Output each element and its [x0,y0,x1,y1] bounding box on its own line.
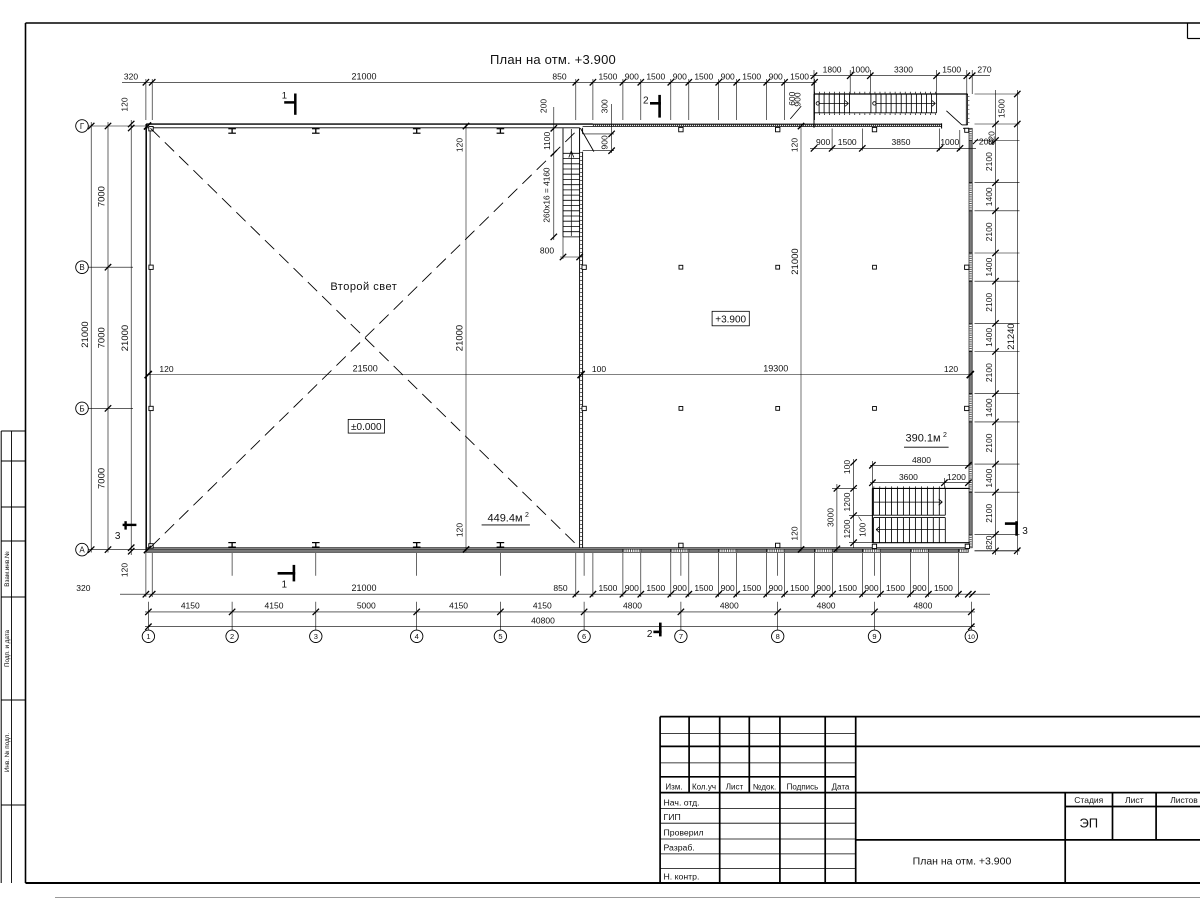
svg-text:Лист: Лист [726,783,744,792]
svg-text:5000: 5000 [357,601,376,611]
svg-text:1400: 1400 [984,328,994,347]
svg-text:2100: 2100 [984,433,994,452]
svg-text:120: 120 [944,364,958,374]
svg-text:Дата: Дата [832,783,850,792]
svg-text:900: 900 [673,71,687,81]
svg-text:120: 120 [790,526,800,540]
svg-text:1100: 1100 [542,131,552,150]
svg-text:1000: 1000 [940,137,959,147]
svg-text:Лист: Лист [1125,795,1144,805]
svg-text:Инв. № подл.: Инв. № подл. [4,733,11,772]
svg-text:390.1м: 390.1м [905,433,940,445]
svg-text:2: 2 [943,432,947,439]
svg-text:900: 900 [793,92,803,106]
svg-text:План на отм. +3.900: План на отм. +3.900 [490,52,616,67]
svg-text:Листов: Листов [1170,795,1198,805]
svg-text:1400: 1400 [984,257,994,276]
svg-text:1200: 1200 [842,519,852,538]
svg-text:1400: 1400 [984,468,994,487]
svg-text:3: 3 [314,632,318,641]
svg-text:Разраб.: Разраб. [664,842,695,852]
svg-text:Подпись: Подпись [787,783,819,792]
svg-text:9: 9 [872,632,876,641]
svg-text:900: 900 [673,583,687,593]
svg-text:21000: 21000 [455,325,466,351]
svg-text:1400: 1400 [984,398,994,417]
svg-text:200: 200 [538,99,548,113]
svg-text:3: 3 [1022,526,1028,537]
svg-text:100: 100 [842,460,852,474]
svg-text:1400: 1400 [984,187,994,206]
svg-text:В: В [79,263,84,272]
svg-text:1500: 1500 [694,583,713,593]
svg-text:±0.000: ±0.000 [351,422,382,433]
svg-text:800: 800 [540,246,554,256]
svg-text:120: 120 [790,138,800,152]
svg-text:2100: 2100 [984,293,994,312]
svg-text:4800: 4800 [912,455,931,465]
svg-text:1500: 1500 [790,71,809,81]
svg-text:120: 120 [120,97,130,111]
svg-text:270: 270 [977,65,991,75]
svg-text:1500: 1500 [598,71,617,81]
svg-text:21000: 21000 [351,583,376,593]
svg-text:1500: 1500 [886,583,905,593]
svg-text:21000: 21000 [351,71,376,81]
svg-text:1: 1 [282,91,287,102]
svg-text:1: 1 [281,580,287,591]
svg-text:100: 100 [858,522,868,536]
svg-text:4800: 4800 [913,601,932,611]
svg-text:900: 900 [864,583,878,593]
svg-text:ЭП: ЭП [1079,816,1098,831]
svg-text:5: 5 [498,632,502,641]
svg-text:850: 850 [552,71,566,81]
svg-text:7000: 7000 [97,468,108,489]
svg-text:4800: 4800 [817,601,836,611]
svg-text:21000: 21000 [80,321,91,347]
svg-text:1500: 1500 [694,71,713,81]
svg-text:900: 900 [625,71,639,81]
svg-text:19300: 19300 [763,363,788,373]
svg-text:1500: 1500 [838,583,857,593]
svg-text:Нач. отд.: Нач. отд. [664,797,700,807]
svg-text:820: 820 [986,131,996,145]
svg-text:1500: 1500 [790,583,809,593]
svg-text:1500: 1500 [742,583,761,593]
svg-text:900: 900 [769,71,783,81]
svg-text:3300: 3300 [894,65,913,75]
svg-text:900: 900 [912,583,926,593]
svg-text:3: 3 [115,531,121,542]
svg-text:8: 8 [776,632,780,641]
svg-text:1500: 1500 [942,65,961,75]
svg-text:820: 820 [984,535,994,549]
svg-text:1200: 1200 [947,472,966,482]
svg-text:№док.: №док. [753,783,776,792]
svg-text:900: 900 [721,583,735,593]
svg-text:Стадия: Стадия [1074,795,1103,805]
svg-text:900: 900 [625,583,639,593]
svg-text:Н. контр.: Н. контр. [664,872,700,882]
svg-text:3600: 3600 [899,472,918,482]
svg-text:10: 10 [968,634,976,641]
svg-text:4150: 4150 [449,601,468,611]
svg-text:900: 900 [817,583,831,593]
svg-text:1: 1 [146,632,150,641]
svg-text:Подп. и дата: Подп. и дата [4,629,11,667]
svg-text:900: 900 [721,71,735,81]
svg-text:120: 120 [454,523,464,537]
svg-text:7000: 7000 [97,327,108,348]
svg-text:1500: 1500 [742,71,761,81]
svg-text:4: 4 [415,632,419,641]
svg-text:2100: 2100 [984,504,994,523]
svg-text:449.4м: 449.4м [487,513,522,525]
svg-text:4150: 4150 [265,601,284,611]
svg-text:100: 100 [592,364,606,374]
svg-text:900: 900 [816,137,830,147]
svg-text:Взам.инв.№: Взам.инв.№ [4,551,11,587]
svg-text:900: 900 [600,135,610,149]
svg-text:1500: 1500 [996,99,1006,118]
svg-text:ГИП: ГИП [664,812,681,822]
svg-text:План на отм. +3.900: План на отм. +3.900 [913,856,1012,868]
svg-text:2: 2 [525,512,529,519]
svg-text:40800: 40800 [531,616,555,626]
svg-text:4150: 4150 [533,601,552,611]
svg-text:Б: Б [79,404,84,413]
svg-text:1800: 1800 [823,65,842,75]
svg-text:21500: 21500 [353,363,378,373]
svg-text:Изм.: Изм. [665,783,682,792]
svg-text:2100: 2100 [984,222,994,241]
svg-text:850: 850 [553,583,567,593]
svg-text:120: 120 [159,364,173,374]
svg-text:900: 900 [769,583,783,593]
svg-text:21000: 21000 [120,325,131,351]
svg-text:260х16 = 4160: 260х16 = 4160 [542,167,552,223]
svg-text:21000: 21000 [790,248,801,274]
svg-text:120: 120 [454,138,464,152]
svg-text:4800: 4800 [623,601,642,611]
svg-text:1200: 1200 [842,492,852,511]
svg-text:1500: 1500 [646,583,665,593]
svg-text:6: 6 [582,632,586,641]
svg-text:А: А [79,546,85,555]
svg-text:320: 320 [124,71,138,81]
svg-text:320: 320 [76,583,90,593]
svg-text:4800: 4800 [720,601,739,611]
svg-text:4150: 4150 [181,601,200,611]
svg-text:300: 300 [600,99,610,113]
svg-text:3000: 3000 [825,508,835,527]
svg-text:+3.900: +3.900 [715,314,746,325]
svg-text:7: 7 [679,632,683,641]
svg-text:21240: 21240 [1006,323,1017,349]
svg-text:7000: 7000 [97,186,108,207]
svg-text:1500: 1500 [646,71,665,81]
svg-text:2100: 2100 [984,152,994,171]
svg-text:120: 120 [120,563,130,577]
svg-text:1500: 1500 [598,583,617,593]
svg-text:1500: 1500 [934,583,953,593]
svg-text:Второй свет: Второй свет [330,281,397,293]
svg-text:Проверил: Проверил [664,828,704,838]
svg-text:2: 2 [643,96,649,107]
svg-text:2100: 2100 [984,363,994,382]
svg-text:2: 2 [230,632,234,641]
svg-text:1000: 1000 [851,65,870,75]
svg-text:3850: 3850 [892,137,911,147]
svg-text:1500: 1500 [838,137,857,147]
svg-text:Г: Г [80,122,85,131]
svg-text:2: 2 [647,629,653,640]
svg-text:Кол.уч: Кол.уч [692,783,716,792]
